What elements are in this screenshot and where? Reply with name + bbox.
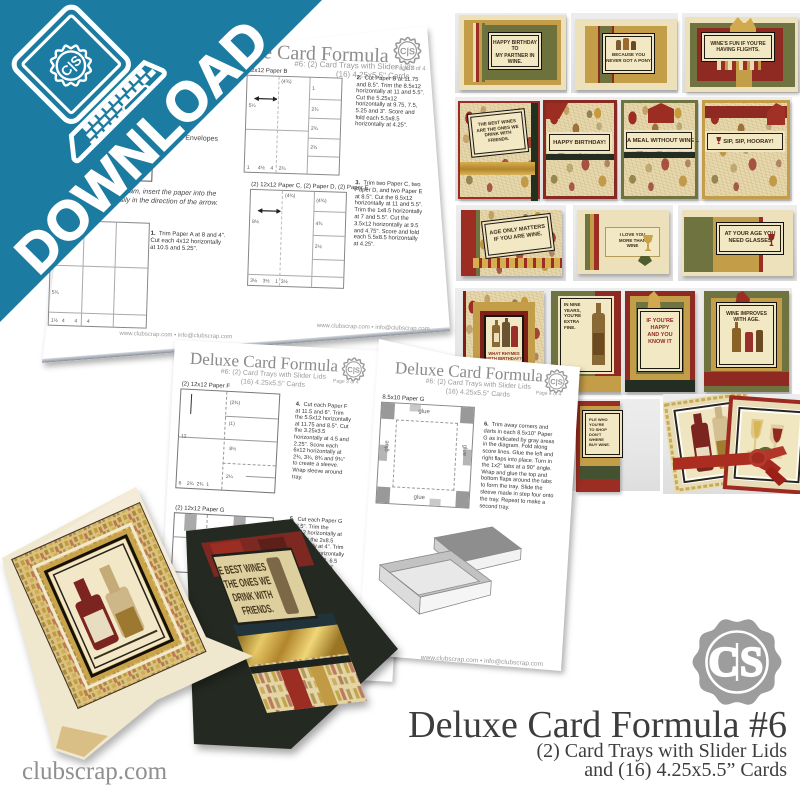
svg-text:FRIENDS.: FRIENDS. (240, 603, 275, 618)
svg-text:C: C (708, 640, 738, 686)
svg-text:C|S: C|S (400, 46, 415, 56)
svg-text:C|S: C|S (550, 377, 563, 387)
svg-text:S: S (740, 640, 763, 686)
